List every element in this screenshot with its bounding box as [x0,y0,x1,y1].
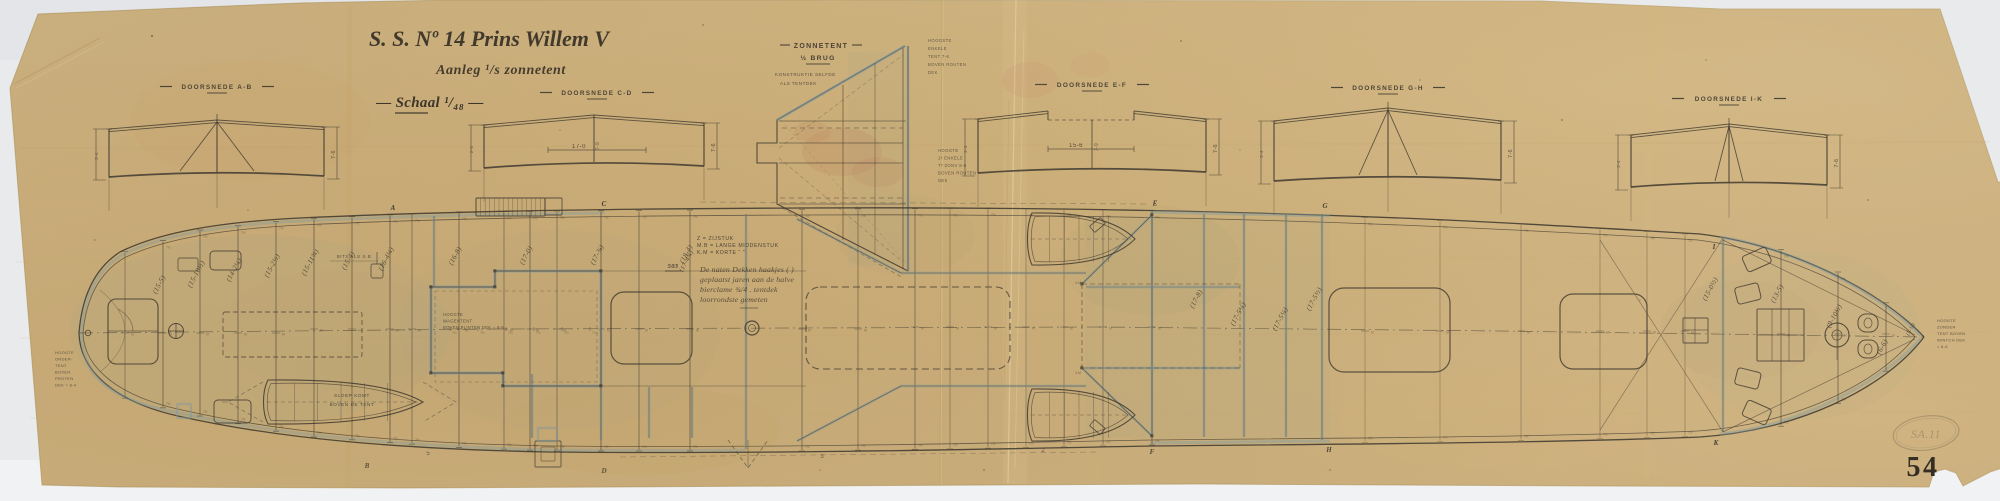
svg-text:7½: 7½ [642,445,647,449]
svg-text:7½: 7½ [1603,433,1608,437]
svg-text:7½: 7½ [1155,215,1160,219]
svg-text:7½: 7½ [918,443,923,447]
svg-text:= 8-6: = 8-6 [1937,344,1948,349]
svg-text:7½: 7½ [693,215,698,219]
svg-text:M: M [696,329,699,333]
svg-text:F: F [1150,448,1155,456]
svg-text:K.M = KORTE “ ”: K.M = KORTE “ ” [697,250,745,256]
svg-text:PROTEN: PROTEN [55,376,73,381]
svg-text:2-4: 2-4 [94,152,99,160]
svg-text:M: M [994,327,997,331]
svg-text:7½: 7½ [393,437,398,441]
svg-text:M: M [1109,327,1112,331]
svg-text:M: M [1606,331,1609,335]
svg-text:M: M [808,329,811,333]
svg-text:M: M [396,329,399,333]
svg-text:A: A [390,204,396,212]
svg-text:4.M: 4.M [1075,371,1081,375]
svg-text:— Schaal ¹/₄₈ —: — Schaal ¹/₄₈ — [375,95,483,111]
svg-text:7-9: 7-9 [1094,143,1100,151]
svg-text:M: M [1653,331,1656,335]
svg-text:DOORSNEDE I-K: DOORSNEDE I-K [1695,96,1763,103]
svg-text:7½: 7½ [642,216,647,220]
svg-text:7½: 7½ [507,217,512,221]
svg-text:M: M [1527,331,1530,335]
svg-text:7¼: 7¼ [564,331,569,335]
svg-text:7¼: 7¼ [592,331,597,335]
svg-text:HOOGTE: HOOGTE [1937,318,1956,323]
svg-text:DEK: DEK [938,178,948,183]
svg-text:WAGENTENT: WAGENTENT [443,319,472,324]
svg-text:M: M [1371,331,1374,335]
svg-text:7½: 7½ [415,438,420,442]
svg-text:M: M [956,327,959,331]
svg-text:M: M [645,329,648,333]
svg-text:7¼: 7¼ [480,331,485,335]
svg-text:M: M [282,333,285,337]
svg-text:SLOEP KOMT: SLOEP KOMT [334,393,370,398]
svg-text:KONSTRUKTIE SELFDE: KONSTRUKTIE SELFDE [775,72,836,77]
svg-text:7½: 7½ [1368,223,1373,227]
svg-text:M: M [1070,327,1073,331]
svg-text:M: M [921,327,924,331]
svg-text:7½: 7½ [604,216,609,220]
svg-text:7½: 7½ [317,223,322,227]
svg-text:7½: 7½ [953,443,958,447]
svg-text:BOVEN: BOVEN [55,370,71,375]
svg-text:7½: 7½ [279,227,284,231]
svg-text:TENT BOVEN: TENT BOVEN [1937,331,1966,336]
svg-text:SA.11: SA.11 [1911,427,1941,441]
svg-text:E: E [1152,199,1158,207]
svg-text:7½: 7½ [1688,430,1693,434]
svg-text:DEK: DEK [928,70,938,75]
svg-text:7½: 7½ [203,235,208,239]
svg-text:7½: 7½ [693,445,698,449]
svg-text:7½: 7½ [861,214,866,218]
svg-text:DOORSNEDE E-F: DOORSNEDE E-F [1057,82,1127,89]
svg-text:54: 54 [1907,452,1940,483]
svg-text:BOVEN ROUTEN: BOVEN ROUTEN [928,62,966,67]
svg-text:M: M [1446,331,1449,335]
svg-text:ENKELE: ENKELE [928,46,947,51]
svg-text:7½: 7½ [415,219,420,223]
svg-text:7½: 7½ [1688,239,1693,243]
svg-text:7½: 7½ [317,431,322,435]
svg-text:C: C [602,200,607,208]
svg-text:7½: 7½ [560,216,565,220]
svg-text:7½: 7½ [805,214,810,218]
svg-text:HOOGTE: HOOGTE [938,148,959,153]
svg-text:7½: 7½ [861,444,866,448]
svg-text:B: B [364,462,370,470]
svg-text:7½: 7½ [462,441,467,445]
svg-text:503: 503 [668,263,679,270]
svg-text:4.M: 4.M [1075,281,1081,285]
svg-text:S. S. Nº 14 Prins Willem V: S. S. Nº 14 Prins Willem V [369,26,611,51]
svg-text:M: M [1892,334,1895,338]
svg-text:M: M [206,333,209,337]
svg-text:ZONDER: ZONDER [1937,325,1956,330]
svg-text:TENT 7-6: TENT 7-6 [928,54,950,59]
svg-text:7-6: 7-6 [1834,159,1840,168]
svg-text:DOORSNEDE C-D: DOORSNEDE C-D [561,90,632,97]
svg-text:G: G [1322,202,1327,210]
svg-text:7½: 7½ [507,443,512,447]
svg-text:7½: 7½ [805,445,810,449]
svg-text:geplaatst jaren aan de halve: geplaatst jaren aan de halve [700,275,794,284]
svg-text:Aanleg ¹/s zonnetent: Aanleg ¹/s zonnetent [435,63,566,78]
svg-text:7-9: 7-9 [595,142,601,150]
svg-text:7½: 7½ [953,213,958,217]
svg-text:7½: 7½ [1155,439,1160,443]
svg-text:7½: 7½ [355,434,360,438]
svg-text:7½: 7½ [1841,277,1846,281]
svg-text:7½: 7½ [241,418,246,422]
svg-text:17-0: 17-0 [572,144,586,150]
svg-text:7½: 7½ [1841,397,1846,401]
svg-text:HOOGTE: HOOGTE [55,350,74,355]
svg-text:ONDER-: ONDER- [55,357,73,362]
svg-text:M: M [244,333,247,337]
svg-text:7½: 7½ [166,246,171,250]
svg-text:7½: 7½ [991,442,996,446]
svg-text:7½: 7½ [1784,420,1789,424]
svg-text:WINTCH DEK: WINTCH DEK [1937,338,1965,343]
svg-text:M: M [1844,334,1847,338]
svg-text:7-6: 7-6 [331,150,337,159]
svg-text:7½: 7½ [1368,436,1373,440]
svg-text:HOOGSTE: HOOGSTE [928,38,952,43]
svg-text:7½: 7½ [1443,226,1448,230]
svg-text:DEK = 8-4: DEK = 8-4 [55,383,77,388]
svg-text:7-6: 7-6 [711,143,717,152]
svg-text:M: M [358,329,361,333]
svg-text:M: M [1158,327,1161,331]
svg-text:7½: 7½ [355,222,360,226]
svg-text:7½: 7½ [1106,440,1111,444]
svg-text:Z = ZIJSTUK: Z = ZIJSTUK [697,236,734,242]
svg-text:7¼: 7¼ [452,331,457,335]
svg-text:M.B = LANGE MIDDENSTUK: M.B = LANGE MIDDENSTUK [697,243,779,249]
svg-text:M: M [1691,331,1694,335]
svg-text:loorrondste gemeten: loorrondste gemeten [700,295,768,304]
svg-text:7½: 7½ [166,402,171,406]
svg-text:M: M [320,329,323,333]
svg-text:7-6: 7-6 [1213,144,1219,153]
svg-text:7½: 7½ [1650,431,1655,435]
svg-text:bierclame ¾/4 . tentdek: bierclame ¾/4 . tentdek [700,285,778,294]
svg-text:7½: 7½ [918,214,923,218]
svg-text:BOVEN PLINTEN DEK = 8-6: BOVEN PLINTEN DEK = 8-6 [443,325,504,330]
svg-text:7½: 7½ [203,410,208,414]
svg-text:ALS TENTDEK: ALS TENTDEK [780,81,817,86]
svg-text:7½: 7½ [1603,233,1608,237]
svg-text:2-4: 2-4 [1259,150,1264,158]
svg-text:7½: 7½ [1784,255,1789,259]
svg-text:7½: 7½ [462,217,467,221]
svg-text:7½: 7½ [1524,229,1529,233]
svg-text:7½: 7½ [991,213,996,217]
svg-text:7½: 7½ [1443,436,1448,440]
svg-text:M: M [864,329,867,333]
svg-text:2-4: 2-4 [1616,160,1621,168]
svg-text:7½: 7½ [1067,441,1072,445]
svg-text:BOVEN ROUTEN: BOVEN ROUTEN [938,171,976,176]
svg-text:7½: 7½ [1029,442,1034,446]
svg-text:De naten Dekken haakjes ( ): De naten Dekken haakjes ( ) [699,265,794,274]
svg-text:7½: 7½ [1650,237,1655,241]
svg-text:M: M [1032,327,1035,331]
svg-text:BITS ALS S.B: BITS ALS S.B [337,254,372,259]
svg-text:D: D [600,467,606,475]
svg-text:H: H [1325,446,1332,454]
svg-text:2-4: 2-4 [469,146,474,154]
svg-text:M: M [131,333,134,337]
svg-text:15-6: 15-6 [1069,143,1083,149]
svg-text:7½: 7½ [279,425,284,429]
svg-text:1ª ENKELE: 1ª ENKELE [938,156,963,161]
svg-text:HOOGTE: HOOGTE [443,312,463,317]
svg-text:M: M [1787,334,1790,338]
svg-text:ZONNETENT: ZONNETENT [794,43,848,50]
svg-text:BOVEN DE TENT: BOVEN DE TENT [330,402,375,407]
svg-text:2-4: 2-4 [963,145,968,153]
svg-text:7½: 7½ [393,220,398,224]
svg-text:TENT: TENT [55,363,67,368]
svg-text:½ BRUG: ½ BRUG [800,54,835,62]
svg-text:M: M [607,329,610,333]
svg-text:7½: 7½ [604,445,609,449]
svg-text:7½: 7½ [241,231,246,235]
svg-text:M: M [418,329,421,333]
svg-text:7¼: 7¼ [536,331,541,335]
svg-text:DOORSNEDE A-B: DOORSNEDE A-B [182,84,253,91]
svg-text:7¼: 7¼ [508,331,513,335]
svg-text:DOORSNEDE G-H: DOORSNEDE G-H [1352,85,1424,92]
svg-text:7½: 7½ [533,216,538,220]
svg-text:7½: 7½ [1524,434,1529,438]
svg-text:Tº ZONV 8-6: Tº ZONV 8-6 [938,163,967,168]
svg-text:7-6: 7-6 [1508,149,1514,158]
